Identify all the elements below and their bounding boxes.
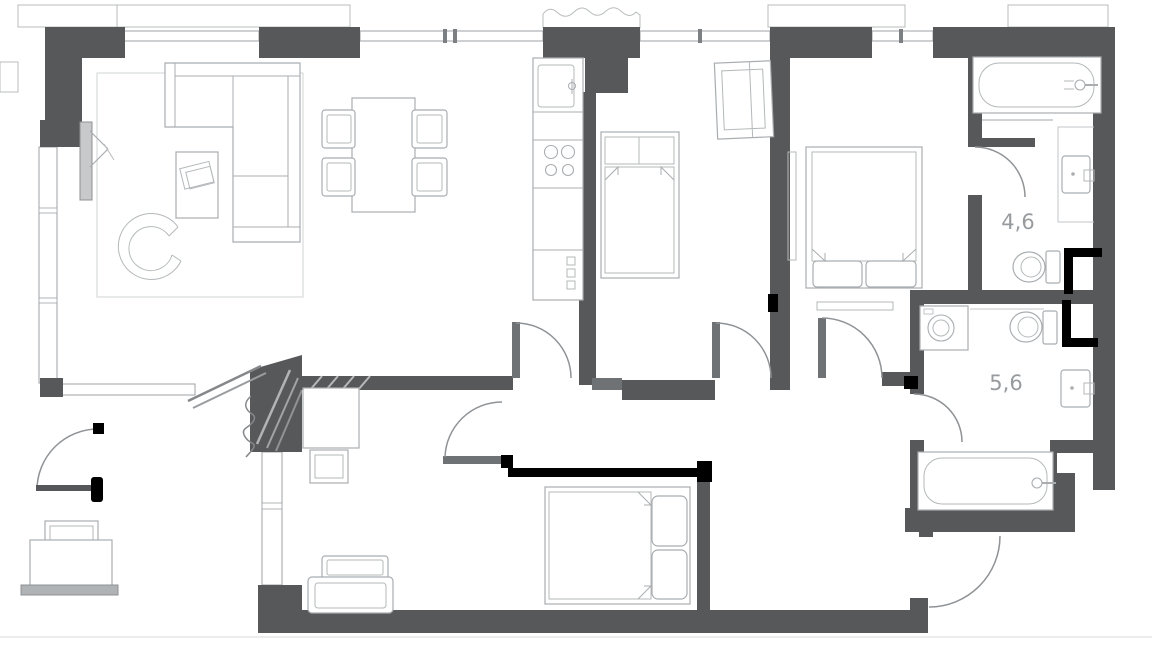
door-swing-icon	[445, 402, 502, 457]
hallway-top-wall	[302, 372, 922, 400]
toilet-icon	[1010, 311, 1057, 344]
pillow-icon	[652, 496, 687, 546]
toilet-icon	[1013, 251, 1060, 283]
window-icon	[58, 384, 195, 395]
window-sill	[0, 62, 18, 92]
washbasin-icon	[1062, 156, 1090, 193]
washing-machine-icon	[920, 306, 968, 350]
window-icon	[262, 452, 282, 585]
lounge-chair-icon	[118, 213, 181, 279]
window-icon	[360, 31, 543, 41]
coffee-table-icon	[176, 152, 218, 218]
landing-area	[21, 423, 118, 595]
pillow-icon	[813, 261, 862, 287]
pillow-icon	[866, 261, 916, 287]
living-room	[80, 63, 447, 297]
entry-door-icon	[188, 355, 302, 457]
room-area-label: 4,6	[1001, 210, 1034, 234]
annotation-tick	[501, 455, 513, 468]
bedroom-small	[601, 61, 774, 278]
annotation-tick	[697, 461, 712, 482]
door-leaf	[443, 456, 503, 464]
balcony-railing-icon	[543, 8, 640, 28]
single-bed-icon	[601, 132, 679, 278]
door-swing-icon	[37, 429, 98, 490]
window-sill	[768, 5, 905, 27]
vanity-counter	[1058, 127, 1094, 222]
bathtub-icon	[918, 452, 1056, 510]
bench-icon	[21, 521, 118, 595]
bench-icon	[817, 302, 893, 310]
door-leaf	[818, 318, 826, 378]
window-icon	[39, 147, 57, 383]
dining-table-icon	[352, 98, 415, 212]
door-leaf	[512, 322, 520, 378]
kitchen	[533, 58, 583, 300]
double-bed-icon	[545, 487, 690, 604]
door-swing-icon	[716, 323, 771, 378]
annotation-tick	[768, 294, 778, 312]
desk-icon	[303, 388, 359, 483]
bathtub-icon	[973, 57, 1101, 113]
door-swing-icon	[929, 536, 1000, 607]
dining-set	[322, 98, 447, 212]
hinge-mark	[91, 477, 103, 502]
door-swing-icon	[914, 394, 962, 442]
wardrobe-icon	[714, 61, 773, 139]
door-swing-icon	[822, 318, 882, 378]
double-bed-icon	[806, 147, 922, 288]
floor-plan-page: 4,6 5,6	[0, 0, 1152, 648]
hinge-mark	[93, 423, 104, 434]
door-swing-icon	[975, 147, 1025, 197]
window-sill	[18, 5, 350, 27]
window-sill	[1008, 5, 1108, 27]
page-edge-line	[0, 636, 1152, 638]
room-area-label: 5,6	[989, 371, 1022, 395]
annotation-tick	[904, 376, 918, 389]
armchair-icon	[308, 556, 393, 613]
window-icon	[640, 31, 770, 41]
bedroom-bottom	[303, 388, 690, 613]
door-leaf	[712, 322, 720, 378]
washbasin-icon	[1061, 370, 1094, 407]
door-swing-icon	[516, 323, 571, 378]
window-icon	[124, 31, 259, 41]
pillow-icon	[652, 550, 687, 599]
annotation-wall-line	[508, 468, 702, 477]
threshold-line	[36, 485, 94, 491]
floor-plan-drawing: 4,6 5,6	[0, 0, 1152, 648]
bedroom-master	[788, 147, 922, 310]
annotation-bracket-lower	[1062, 300, 1098, 347]
